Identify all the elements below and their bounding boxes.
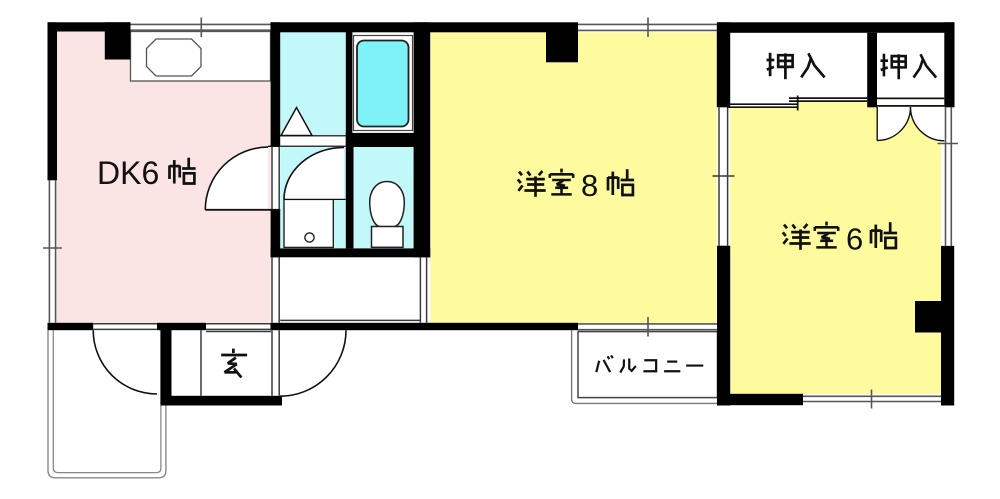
svg-text:6: 6	[846, 222, 863, 257]
svg-text:DK6: DK6	[97, 155, 159, 191]
svg-text:8: 8	[581, 168, 598, 203]
